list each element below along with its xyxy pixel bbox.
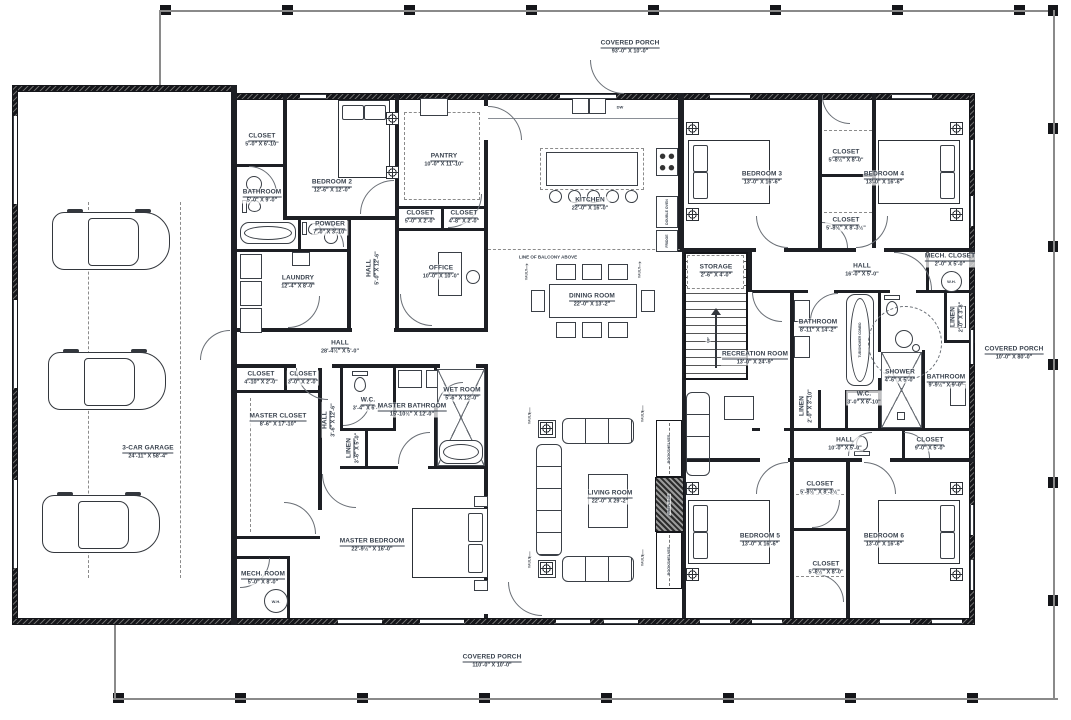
parking-guide-line — [180, 202, 181, 578]
nightstand — [474, 496, 488, 507]
window — [880, 619, 910, 624]
door-arc — [810, 293, 838, 321]
vault-arrow-down: ↓VAULT — [524, 404, 535, 421]
room-label-shower: SHOWER4'-6" X 5'-0" — [884, 369, 916, 384]
room-label-closet: CLOSET3'-0" X 2'-0" — [287, 371, 319, 386]
room-label-closet: CLOSET4'-8" X 2'-0" — [448, 210, 480, 225]
shower-drain — [897, 412, 905, 420]
room-label-storage: STORAGE2'-6" X 4'-0" — [699, 264, 734, 279]
lamp-symbol — [540, 562, 553, 575]
room-label-laundry: LAUNDRY12'-4" X 8'-0" — [280, 275, 316, 290]
room-label-hall-se: HALL10'-0" X 5'-0" — [827, 437, 863, 452]
window — [932, 619, 962, 624]
room-label-bedroom-3: BEDROOM 313'-0" X 16'-6" — [741, 171, 783, 186]
vault-label: VAULT — [638, 267, 642, 278]
garage-door — [13, 116, 17, 204]
wall — [340, 428, 396, 431]
chair — [641, 290, 655, 312]
dishwasher-label: DW — [617, 105, 624, 110]
washer — [240, 254, 262, 279]
wall — [393, 368, 396, 430]
car-wheel — [125, 492, 141, 496]
room-label-bedroom-6: BEDROOM 613'-0" X 16'-6" — [863, 533, 905, 548]
kitchen-sink — [589, 98, 606, 114]
room-label-closet: CLOSET9'-0" X 5'-0" — [914, 437, 946, 452]
water-heater: W.H. — [941, 271, 962, 292]
vault-arrow-down: ↓VAULT — [524, 548, 535, 565]
wall — [678, 93, 684, 252]
window — [560, 94, 616, 99]
wall — [237, 164, 285, 167]
opening — [352, 328, 394, 332]
door-arc — [400, 294, 432, 326]
window — [700, 619, 730, 624]
room-label-bathroom: BATHROOM5'-0" X 9'-0" — [242, 189, 283, 204]
window-symbol — [386, 112, 399, 125]
chair — [531, 290, 545, 312]
toilet — [354, 377, 366, 392]
window — [556, 619, 590, 624]
stool — [625, 190, 638, 203]
room-label-bedroom-2: BEDROOM 212'-6" X 12'-0" — [311, 179, 353, 194]
room-label-bathroom-e: BATHROOM9'-9½" X 9'-0" — [926, 374, 967, 389]
vault-arrow-down: ↓VAULT — [637, 546, 648, 563]
window-symbol — [686, 482, 699, 495]
door-arc — [398, 432, 430, 464]
wall — [365, 428, 368, 468]
balcony-line — [488, 249, 680, 250]
garage-door — [13, 480, 17, 568]
porch-edge-bottom — [113, 698, 1058, 700]
wall — [12, 85, 237, 92]
wall — [682, 458, 975, 462]
room-label-living-room: LIVING ROOM22'-0" X 29'-2" — [587, 490, 634, 505]
freestanding-tub — [439, 440, 483, 464]
room-label-hall-main: HALL28'-4½" X 5'-0" — [320, 340, 360, 355]
room-label-covered-porch-right: COVERED PORCH10'-0" X 80'-0" — [984, 346, 1045, 361]
wall — [298, 216, 301, 252]
room-label-linen: LINEN2'-0" X 3'-8" — [950, 301, 965, 333]
toilet-tank — [302, 222, 307, 235]
porch-edge-right — [1053, 10, 1055, 700]
toilet-tank — [352, 371, 368, 376]
room-label-pantry: PANTRY10'-0" X 11'-10" — [423, 153, 464, 168]
chair — [556, 322, 576, 338]
window-symbol — [686, 122, 699, 135]
room-label-wc: W.C.3'-0" X 6'-10" — [846, 391, 882, 406]
door-opening — [856, 248, 884, 252]
fireplace-label: FIREPLACE — [667, 494, 671, 516]
car-cabin — [88, 218, 139, 266]
wall — [752, 290, 975, 293]
window-symbol — [950, 122, 963, 135]
sofa — [562, 418, 634, 444]
window — [970, 140, 974, 170]
window — [338, 619, 382, 624]
window-symbol — [686, 208, 699, 221]
car-wheel — [131, 349, 147, 353]
room-label-hall-ne: HALL16'-0" X 5'-0" — [844, 263, 880, 278]
closet-rod — [824, 130, 872, 131]
room-label-mech-room: MECH. ROOM5'-0" X 8'-0" — [240, 571, 286, 586]
stair-arrow-up — [711, 308, 721, 315]
vault-label: VAULT — [641, 555, 645, 566]
pillow — [940, 505, 955, 532]
room-label-hall-master: HALL3'-6" X 12'-6" — [322, 402, 337, 438]
room-label-kitchen: KITCHEN22'-0" X 16'-0" — [571, 197, 610, 212]
pillow — [940, 172, 955, 199]
door-arc — [360, 180, 394, 214]
opening — [760, 428, 784, 431]
stair-up-label: UP — [706, 337, 711, 343]
car-wheel — [63, 349, 79, 353]
vault-arrow-down: ↓VAULT — [637, 402, 648, 419]
tub-shower-combo-label: TUB/SHOWER COMBO — [858, 323, 862, 358]
door-opening — [756, 248, 784, 252]
door-arc — [590, 60, 624, 94]
wall — [790, 528, 848, 531]
door-arc — [816, 574, 844, 602]
office-chair — [466, 270, 480, 284]
lamp-symbol — [540, 422, 553, 435]
door-arc — [756, 462, 788, 494]
door-opening — [808, 290, 834, 293]
window-symbol — [686, 568, 699, 581]
tub-basin — [443, 444, 479, 460]
porch-edge-top — [160, 10, 1057, 12]
water-heater: W.H. — [264, 589, 288, 613]
wall — [287, 556, 290, 618]
door-opening — [890, 290, 916, 293]
nightstand — [474, 580, 488, 591]
counter-edge — [488, 118, 678, 119]
wall — [790, 458, 794, 618]
wall — [748, 252, 752, 292]
room-label-dining: DINING ROOM22'-0" X 13'-2" — [568, 293, 616, 308]
car-wheel — [67, 209, 83, 213]
room-label-closet: CLOSET5'-0" X 2'-0" — [404, 210, 436, 225]
room-label-closet: CLOSET5'-8½" X 8'-3½" — [799, 481, 841, 496]
pillow — [468, 513, 483, 542]
double-oven-label: DOUBLE OVEN — [665, 199, 669, 225]
room-label-powder: POWDER7'-0" X 3'-10" — [312, 221, 348, 236]
car-wheel — [57, 492, 73, 496]
room-label-bedroom-5: BEDROOM 513'-0" X 16'-6" — [739, 533, 781, 548]
door-arc — [864, 462, 896, 494]
chair — [608, 322, 628, 338]
room-label-linen: LINEN2'-0" X 3'-10" — [799, 388, 814, 424]
table — [724, 396, 754, 420]
wall — [395, 93, 399, 332]
pillow — [364, 105, 386, 120]
bed — [338, 100, 390, 178]
room-label-recreation-room: RECREATION ROOM13'-0" X 24'-9" — [721, 351, 789, 366]
door-arc — [822, 96, 850, 124]
window-symbol — [950, 208, 963, 221]
vanity-sink — [794, 336, 810, 358]
opening — [440, 364, 476, 368]
wall — [752, 428, 975, 431]
room-label-office: OFFICE10'-0" X 10'-0" — [422, 265, 461, 280]
chair — [582, 322, 602, 338]
door-arc — [288, 296, 320, 328]
window — [300, 94, 326, 99]
window — [710, 94, 750, 99]
stair-direction-line — [715, 312, 717, 368]
master-bed — [412, 508, 488, 578]
pillow — [342, 105, 364, 120]
door-arc — [200, 330, 230, 360]
sofa — [686, 392, 710, 476]
room-label-bedroom-4: BEDROOM 413'-0" X 16'-6" — [863, 171, 905, 186]
door-opening — [398, 466, 428, 469]
door-arc — [284, 502, 316, 534]
wall — [283, 93, 287, 218]
room-label-closet: CLOSET5'-8½" X 8'-3½" — [825, 217, 867, 232]
window — [970, 505, 974, 535]
window-symbol — [950, 482, 963, 495]
room-label-closet: CLOSET5'-0" X 6'-10" — [244, 133, 280, 148]
stool — [549, 190, 562, 203]
toilet-tank — [884, 295, 900, 300]
door-arc — [752, 292, 782, 322]
room-label-garage: 3-CAR GARAGE24'-11" X 58'-4" — [121, 445, 174, 460]
pillow — [693, 505, 708, 532]
vault-label: VAULT — [528, 413, 532, 424]
wall — [441, 206, 444, 231]
fridge-label: FRIDGE — [665, 234, 669, 247]
kitchen-island — [546, 152, 638, 186]
porch-edge-left-bottom — [114, 624, 116, 698]
door-arc — [812, 500, 840, 528]
floor-plan-sheet: DW DOUBLE OVEN FRIDGE W — [0, 0, 1071, 720]
pillow — [693, 145, 708, 172]
range-cooktop — [656, 148, 678, 176]
door-arc — [488, 106, 522, 140]
porch-edge-left-top — [159, 10, 161, 86]
room-label-mech-closet: MECH. CLOSET2'-0" X 5'-0" — [924, 253, 976, 268]
window — [604, 619, 638, 624]
door-arc — [756, 216, 788, 248]
pillow — [940, 145, 955, 172]
kitchen-sink — [572, 98, 589, 114]
room-label-master-bathroom: MASTER BATHROOM15'-10½" X 12'-0" — [377, 403, 448, 418]
wall — [818, 390, 821, 430]
wall — [237, 536, 320, 539]
sofa — [562, 556, 634, 582]
dryer — [240, 281, 262, 306]
window — [970, 560, 974, 590]
room-label-closet: CLOSET5'-8½" X 8'-0" — [807, 561, 844, 576]
pillow — [940, 532, 955, 559]
room-label-closet: CLOSET5'-8½" X 8'-0" — [827, 149, 864, 164]
bookshelves-label: BOOKSHELVES — [667, 547, 671, 576]
chair — [556, 264, 576, 280]
chair — [608, 264, 628, 280]
vault-arrow-up: ↑VAULT — [521, 260, 532, 277]
window-symbol — [950, 568, 963, 581]
car — [48, 352, 166, 410]
window — [420, 619, 464, 624]
tub-basin — [244, 226, 292, 240]
vanity-sink — [398, 370, 422, 388]
car — [42, 495, 160, 553]
car-wheel — [135, 209, 151, 213]
car — [52, 212, 170, 270]
door-arc — [508, 582, 542, 616]
pillow — [468, 544, 483, 573]
room-label-linen: LINEN3'-6" X 5'-0" — [346, 432, 361, 464]
wall — [846, 458, 850, 618]
vault-label: VAULT — [641, 411, 645, 422]
vault-label: VAULT — [525, 269, 529, 280]
balcony-line-label: LINE OF BALCONY ABOVE — [519, 255, 577, 260]
room-label-bathroom-ne: BATHROOM8'-11" X 14'-2" — [798, 319, 839, 334]
room-label-covered-porch-bottom: COVERED PORCH110'-0" X 10'-0" — [462, 654, 523, 669]
closet-rod — [824, 212, 872, 213]
wall — [12, 618, 975, 625]
bathtub — [240, 222, 296, 244]
room-label-closet: CLOSET4'-10" X 2'-0" — [243, 371, 279, 386]
chair — [582, 264, 602, 280]
window — [970, 196, 974, 226]
bookshelves-label: BOOKSHELVES — [667, 435, 671, 464]
car-cabin — [78, 501, 129, 549]
pantry-freezer — [420, 98, 448, 116]
room-label-wet-room: WET ROOM5'-6" X 12'-0" — [442, 387, 481, 402]
window — [752, 619, 782, 624]
vault-arrow-up: ↑VAULT — [634, 258, 645, 275]
car-cabin — [84, 358, 135, 406]
room-label-covered-porch-top: COVERED PORCH93'-0" X 10'-0" — [600, 40, 661, 55]
utility-sink — [292, 252, 310, 266]
vault-label: VAULT — [528, 557, 532, 568]
garage-door — [13, 300, 17, 388]
window — [892, 94, 932, 99]
pillow — [693, 532, 708, 559]
door-arc — [322, 474, 356, 508]
laundry-cabinet — [240, 308, 262, 333]
sofa — [536, 444, 562, 556]
wall — [944, 292, 947, 342]
room-label-master-bedroom: MASTER BEDROOM22'-9½" X 16'-0" — [339, 538, 406, 553]
pillow — [693, 172, 708, 199]
window — [970, 330, 974, 364]
room-label-master-closet: MASTER CLOSET8'-6" X 17'-10" — [249, 413, 308, 428]
room-label-hall-office: HALL5'-0" X 12'-6" — [366, 250, 381, 286]
window-symbol — [386, 166, 399, 179]
